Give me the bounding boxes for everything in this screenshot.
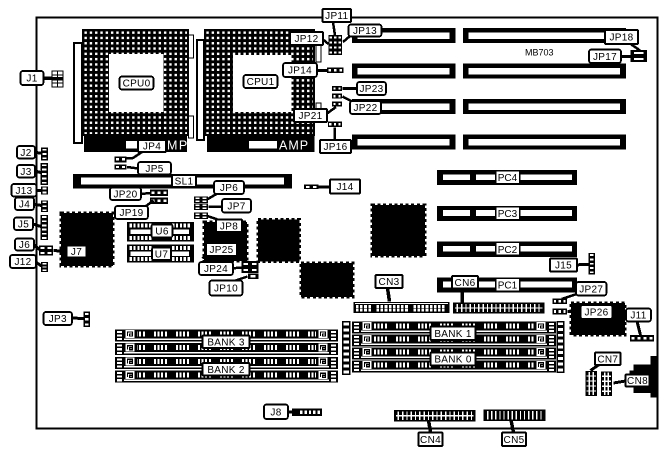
- svg-text:JP12: JP12: [295, 34, 319, 45]
- svg-text:JP7: JP7: [227, 201, 245, 212]
- svg-text:JP14: JP14: [288, 66, 312, 77]
- svg-text:BANK 3: BANK 3: [207, 337, 245, 348]
- svg-text:CN8: CN8: [627, 376, 648, 387]
- svg-text:J4: J4: [19, 199, 30, 210]
- svg-text:BANK 1: BANK 1: [434, 329, 472, 340]
- svg-text:JP11: JP11: [325, 11, 348, 22]
- svg-text:JP18: JP18: [610, 33, 634, 44]
- svg-text:U6: U6: [155, 227, 169, 238]
- svg-text:JP26: JP26: [585, 308, 609, 319]
- svg-text:U7: U7: [155, 249, 169, 260]
- svg-text:J6: J6: [19, 240, 30, 251]
- svg-text:CN6: CN6: [455, 278, 476, 289]
- svg-text:PC3: PC3: [498, 209, 518, 220]
- svg-text:J12: J12: [14, 257, 31, 268]
- svg-text:SL1: SL1: [175, 177, 194, 188]
- svg-text:J3: J3: [20, 167, 31, 178]
- svg-text:AMP: AMP: [279, 139, 309, 153]
- svg-text:CPU1: CPU1: [247, 77, 275, 88]
- svg-text:CPU0: CPU0: [123, 79, 151, 90]
- svg-text:J8: J8: [270, 407, 281, 418]
- svg-text:CN3: CN3: [379, 277, 400, 288]
- svg-text:J14: J14: [336, 182, 353, 193]
- svg-text:JP17: JP17: [593, 52, 617, 63]
- svg-text:JP24: JP24: [204, 264, 228, 275]
- svg-text:J5: J5: [18, 219, 29, 230]
- svg-text:PC4: PC4: [498, 173, 518, 184]
- svg-text:PC2: PC2: [498, 245, 518, 256]
- svg-text:JP6: JP6: [220, 183, 238, 194]
- svg-text:JP4: JP4: [143, 142, 161, 153]
- svg-text:JP16: JP16: [324, 142, 348, 153]
- svg-text:PC1: PC1: [498, 281, 518, 292]
- svg-text:MB703: MB703: [525, 48, 554, 58]
- svg-text:JP21: JP21: [299, 111, 323, 122]
- svg-text:CN7: CN7: [597, 354, 618, 365]
- svg-text:J2: J2: [20, 148, 31, 159]
- svg-text:JP20: JP20: [114, 189, 138, 200]
- svg-text:JP19: JP19: [120, 208, 144, 219]
- svg-text:J7: J7: [71, 247, 82, 258]
- svg-text:BANK 2: BANK 2: [207, 365, 245, 376]
- svg-text:J15: J15: [555, 261, 572, 272]
- svg-text:J1: J1: [26, 74, 37, 85]
- svg-text:J13: J13: [15, 186, 32, 197]
- svg-text:CN5: CN5: [504, 435, 525, 446]
- svg-text:JP22: JP22: [354, 103, 378, 114]
- svg-text:J11: J11: [630, 311, 646, 322]
- svg-text:JP25: JP25: [210, 245, 234, 256]
- svg-text:JP3: JP3: [49, 314, 67, 325]
- svg-text:JP8: JP8: [220, 221, 238, 232]
- svg-text:BANK 0: BANK 0: [434, 355, 472, 366]
- svg-text:MP: MP: [167, 139, 189, 153]
- svg-text:JP5: JP5: [145, 164, 163, 175]
- svg-text:CN4: CN4: [420, 435, 441, 446]
- svg-text:JP13: JP13: [353, 26, 377, 37]
- svg-text:JP27: JP27: [579, 284, 603, 295]
- svg-text:JP10: JP10: [214, 284, 238, 295]
- svg-text:JP23: JP23: [360, 84, 384, 95]
